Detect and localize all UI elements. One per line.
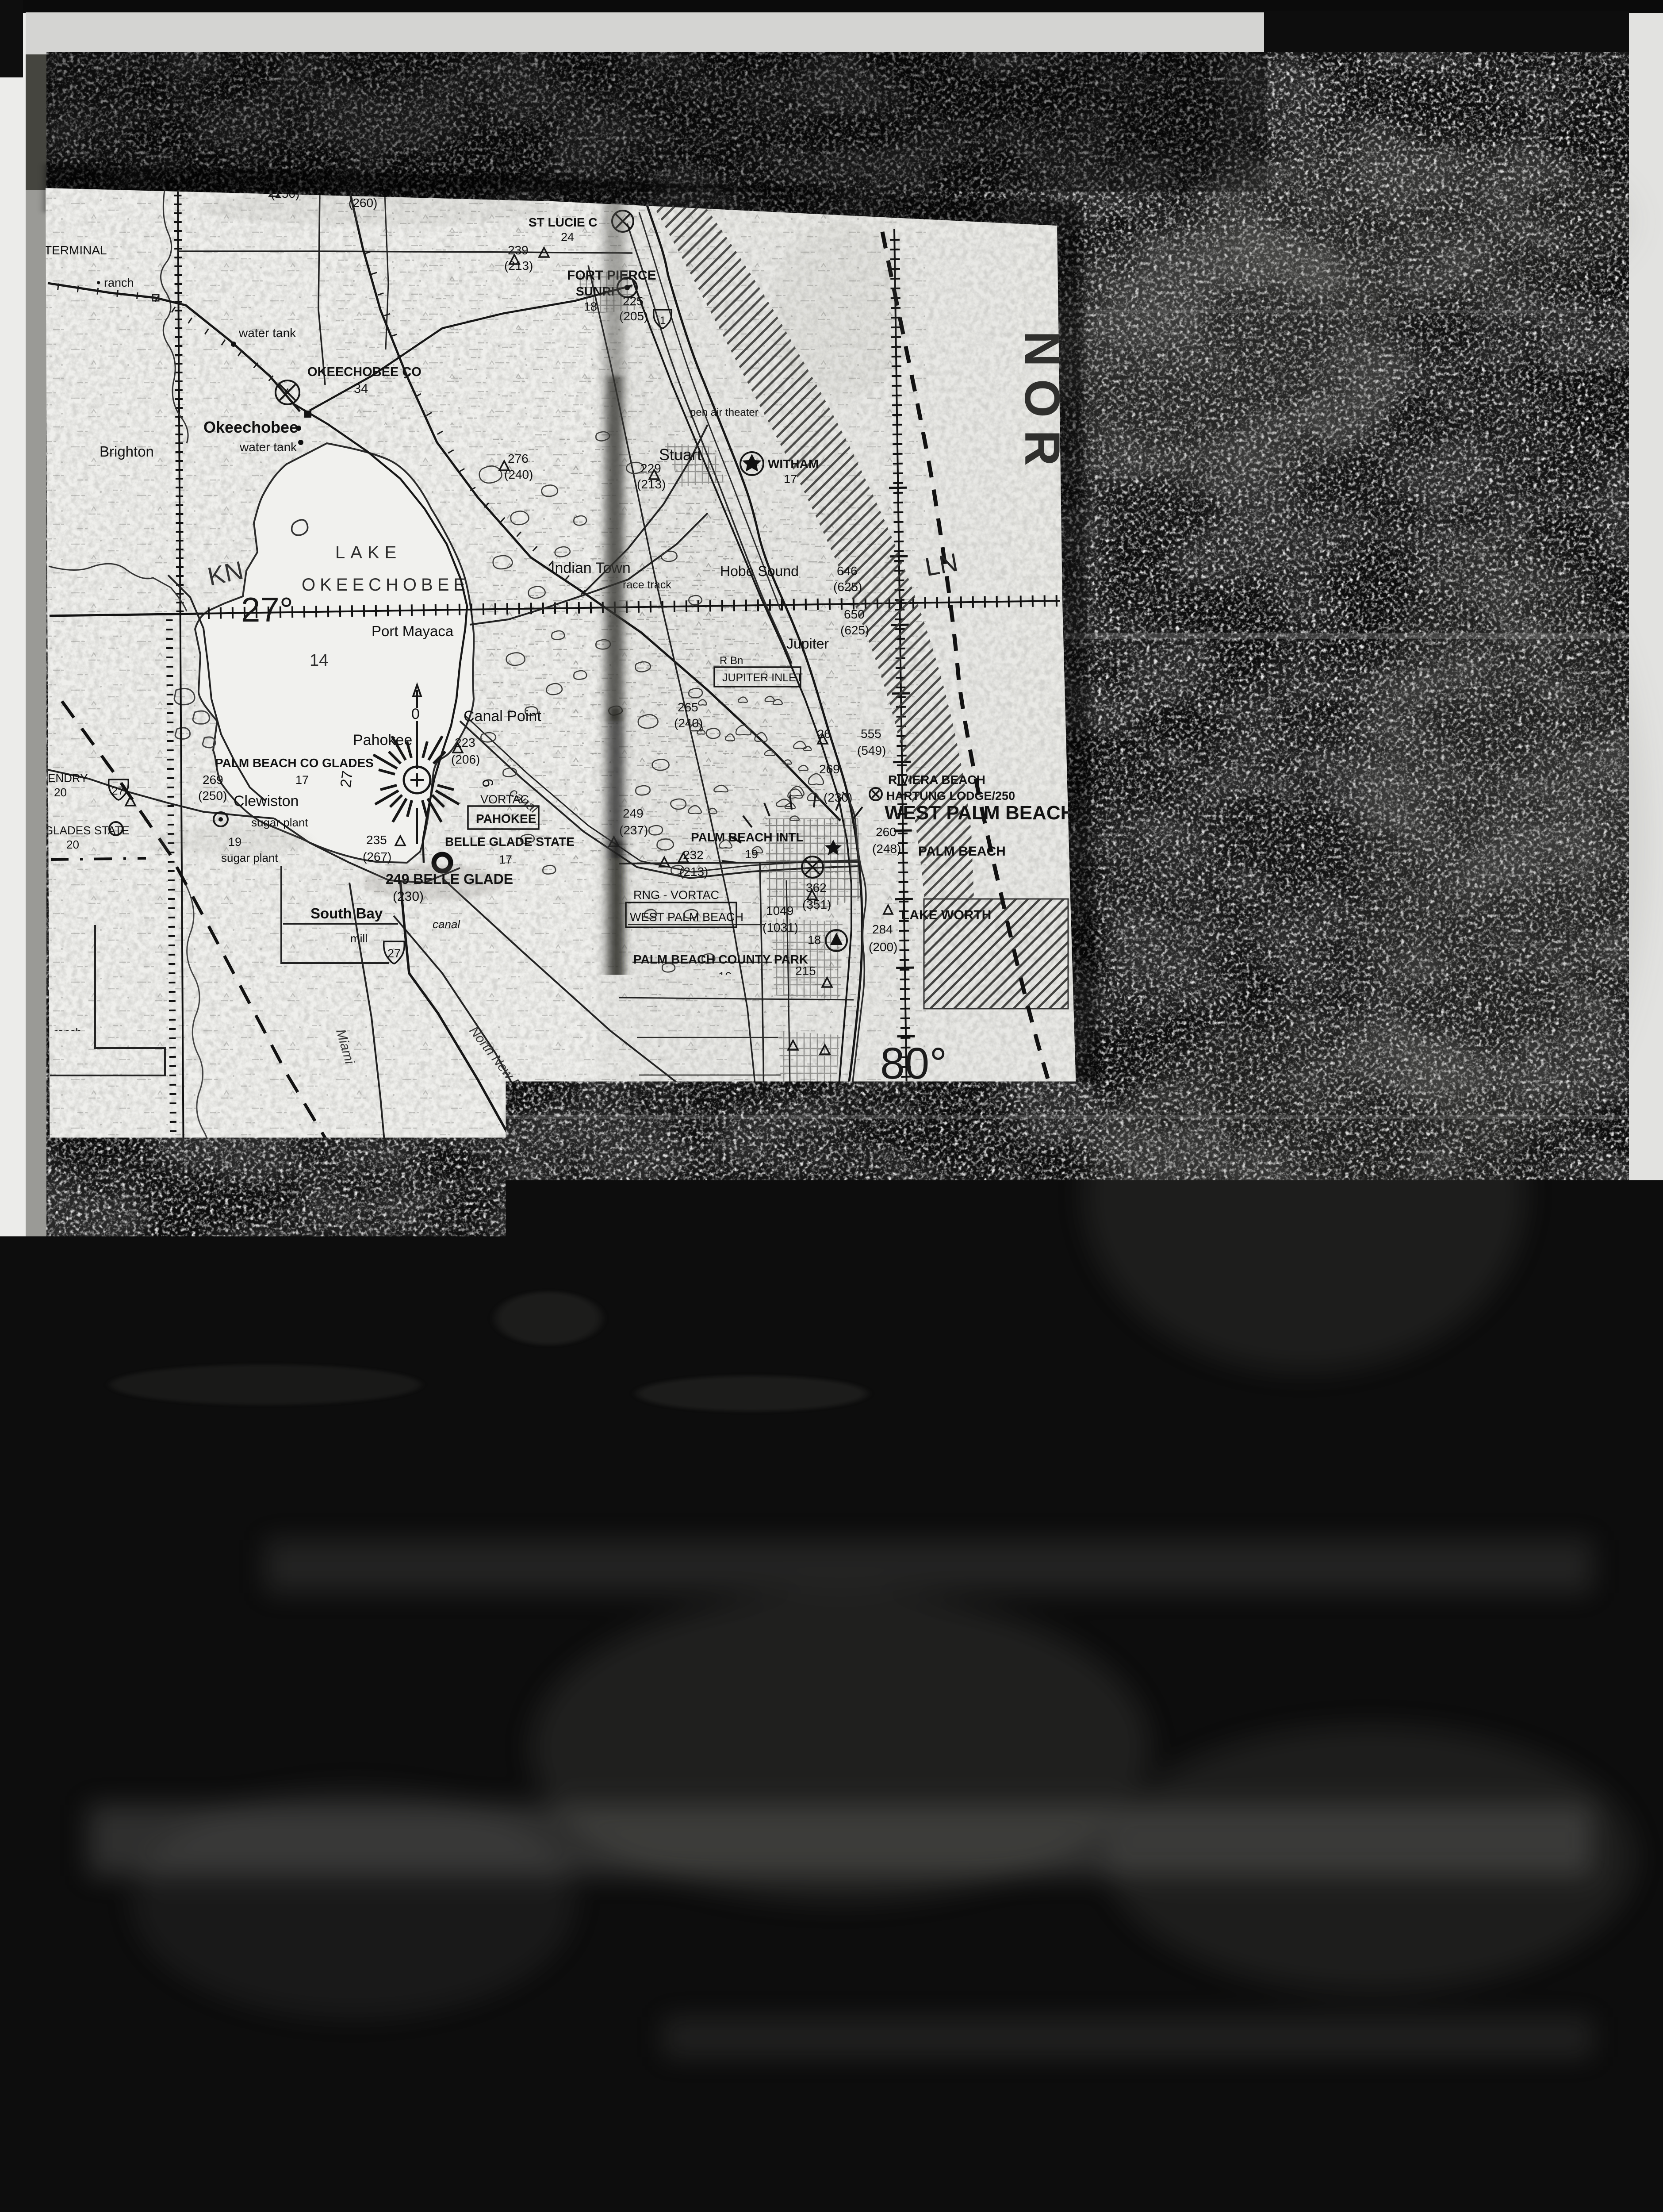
svg-text:FORT LAUDERDALE: FORT LAUDERDALE [847, 1298, 1030, 1319]
svg-text:mill: mill [350, 932, 368, 945]
svg-text:16: 16 [918, 1366, 931, 1379]
svg-text:(351): (351) [802, 898, 831, 911]
svg-text:Brighton: Brighton [100, 443, 154, 460]
svg-text:235: 235 [366, 833, 387, 847]
svg-text:17: 17 [784, 472, 797, 486]
svg-text:27: 27 [337, 770, 356, 789]
svg-text:(240): (240) [504, 468, 533, 481]
svg-text:(248): (248) [872, 842, 901, 856]
svg-text:997: 997 [780, 1378, 801, 1392]
svg-text:HOLLYWOOD: HOLLYWOOD [838, 1383, 948, 1402]
svg-text:PAHOKEE: PAHOKEE [476, 812, 536, 826]
svg-text:(230): (230) [824, 791, 852, 804]
svg-text:RNG - VORTAC: RNG - VORTAC [633, 888, 719, 902]
svg-text:284: 284 [872, 922, 893, 936]
svg-text:West Dixie Bend: West Dixie Bend [630, 1153, 741, 1170]
svg-text:OKEECHOBEE CO: OKEECHOBEE CO [307, 365, 421, 379]
svg-text:OKEECHOBEE: OKEECHOBEE [302, 575, 470, 595]
svg-text:HILLSBORO INLET: HILLSBORO INLET [928, 1194, 1030, 1207]
svg-text:27°: 27° [241, 590, 293, 629]
svg-text:canal: canal [433, 918, 460, 931]
svg-text:27: 27 [387, 947, 401, 960]
svg-text:02: 02 [504, 978, 582, 1039]
svg-text:PALM BEACH: PALM BEACH [918, 844, 1006, 859]
svg-text:19: 19 [228, 835, 241, 849]
svg-text:GLADES STATE: GLADES STATE [44, 824, 130, 837]
svg-text:(206): (206) [451, 753, 480, 766]
svg-text:27: 27 [111, 784, 124, 797]
svg-text:34: 34 [354, 382, 368, 396]
svg-text:(549): (549) [857, 744, 886, 757]
svg-text:(213): (213) [679, 865, 708, 879]
svg-text:Boynton Beach: Boynton Beach [717, 995, 824, 1013]
svg-text:BELLE GLADE STATE: BELLE GLADE STATE [445, 835, 575, 849]
svg-text:race track: race track [623, 579, 671, 591]
svg-text:sugar plant: sugar plant [221, 851, 278, 864]
svg-text:BOCA RATON: BOCA RATON [854, 1094, 943, 1109]
svg-text:WEST HOLLYWOOD: WEST HOLLYWOOD [571, 1380, 742, 1400]
svg-text:WITHAM: WITHAM [768, 457, 819, 471]
svg-text:362: 362 [806, 881, 827, 895]
svg-text:ST LUCIE C: ST LUCIE C [529, 215, 598, 229]
svg-text:1049: 1049 [766, 904, 793, 918]
svg-text:LN: LN [923, 548, 960, 582]
svg-text:26: 26 [817, 727, 831, 741]
svg-text:20: 20 [54, 786, 67, 799]
svg-text:Canal Point: Canal Point [464, 708, 541, 725]
svg-text:R Bn: R Bn [720, 655, 743, 667]
svg-text:WEST PALM BEACH: WEST PALM BEACH [630, 910, 743, 924]
svg-text:222: 222 [808, 1037, 828, 1050]
svg-text:race track: race track [742, 1233, 793, 1247]
svg-text:(300): (300) [755, 1050, 783, 1064]
svg-text:225: 225 [623, 294, 644, 308]
svg-text:(625): (625) [840, 623, 869, 637]
svg-text:229: 229 [640, 461, 661, 475]
svg-text:(200): (200) [709, 1195, 738, 1209]
svg-text:Clewiston: Clewiston [234, 793, 299, 810]
svg-text:20: 20 [66, 838, 79, 851]
svg-text:JUPITER INLET: JUPITER INLET [722, 672, 803, 684]
svg-text:249: 249 [623, 806, 644, 820]
svg-text:PALM BEACH CO GLADES: PALM BEACH CO GLADES [215, 756, 374, 770]
svg-text:(282): (282) [836, 1334, 865, 1348]
svg-text:249 BELLE GLADE: 249 BELLE GLADE [386, 871, 513, 887]
svg-text:Stack: Stack [787, 1306, 819, 1320]
svg-text:14: 14 [893, 1113, 906, 1126]
svg-text:(250): (250) [198, 789, 227, 803]
svg-text:VORTAC: VORTAC [480, 793, 529, 806]
svg-text:276: 276 [508, 452, 529, 465]
svg-text:(213): (213) [637, 477, 666, 491]
svg-text:(1031): (1031) [763, 921, 798, 934]
svg-text:(260): (260) [349, 196, 377, 210]
svg-text:265: 265 [678, 700, 698, 714]
svg-text:FT LAUDERDALE EXECUTIVE: FT LAUDERDALE EXECUTIVE [852, 1252, 1029, 1265]
svg-text:0: 0 [411, 706, 420, 722]
svg-text:Andytown: Andytown [513, 1288, 575, 1304]
svg-text:LAKE WORTH: LAKE WORTH [901, 908, 991, 922]
svg-text:(213): (213) [504, 259, 533, 273]
svg-text:650: 650 [844, 607, 865, 621]
svg-text:269: 269 [203, 773, 223, 787]
svg-text:(203): (203) [740, 1359, 768, 1373]
svg-text:water tank: water tank [238, 326, 296, 340]
svg-text:14: 14 [310, 651, 328, 670]
svg-text:269: 269 [819, 762, 840, 776]
svg-text:FLORIDA: FLORIDA [65, 1175, 341, 1220]
svg-text:21: 21 [854, 1210, 867, 1224]
svg-text:239: 239 [508, 243, 529, 257]
svg-text:ENDRY: ENDRY [48, 772, 88, 785]
svg-text:ranch: ranch [54, 1026, 82, 1039]
svg-text:213: 213 [743, 1343, 764, 1356]
svg-text:(267): (267) [363, 850, 391, 864]
svg-text:276: 276 [760, 1178, 781, 1192]
svg-text:232: 232 [683, 848, 704, 862]
svg-text:Pahokee: Pahokee [353, 732, 412, 749]
svg-text:pen air theater: pen air theater [690, 407, 759, 419]
svg-text:Jupiter: Jupiter [786, 636, 829, 652]
svg-text:(625): (625) [833, 580, 862, 594]
svg-text:WEST PALM BEACH: WEST PALM BEACH [885, 802, 1074, 824]
svg-text:278: 278 [839, 1316, 860, 1330]
svg-text:water tank: water tank [239, 440, 297, 454]
svg-text:POMPANO BEACH: POMPANO BEACH [852, 1233, 970, 1247]
svg-text:19: 19 [745, 848, 758, 861]
svg-text:324: 324 [758, 1033, 779, 1047]
svg-text:18: 18 [584, 300, 597, 313]
svg-text:(240): (240) [674, 716, 703, 730]
svg-text:212: 212 [713, 1178, 734, 1192]
svg-text:• ranch: • ranch [96, 276, 134, 289]
svg-text:Stuart: Stuart [659, 445, 701, 464]
svg-text:17: 17 [499, 853, 512, 866]
svg-text:HARTUNG LODGE/250: HARTUNG LODGE/250 [886, 789, 1015, 803]
svg-text:Deerfield Beach: Deerfield Beach [860, 1157, 973, 1175]
svg-text:18: 18 [808, 933, 821, 947]
svg-text:PALM BEACH COUNTY PARK: PALM BEACH COUNTY PARK [633, 952, 808, 966]
svg-text:1: 1 [660, 315, 666, 326]
svg-text:RIVIERA BEACH: RIVIERA BEACH [888, 773, 985, 787]
svg-text:(200): (200) [869, 940, 897, 954]
svg-text:PALM BEACH INTL: PALM BEACH INTL [691, 830, 804, 844]
svg-text:14: 14 [931, 1271, 944, 1284]
svg-text:BROOKLEY: BROOKLEY [808, 1276, 878, 1290]
svg-text:Hobe Sound: Hobe Sound [720, 563, 799, 579]
svg-text:LM: LM [958, 1366, 1002, 1402]
svg-text:555: 555 [861, 727, 881, 741]
svg-text:9: 9 [832, 1285, 839, 1298]
svg-text:223: 223 [455, 736, 475, 749]
svg-text:DELRAY BEACH: DELRAY BEACH [885, 1032, 989, 1046]
svg-text:TERMINAL: TERMINAL [44, 243, 107, 257]
svg-text:24: 24 [561, 230, 574, 244]
svg-text:(230): (230) [393, 889, 424, 904]
svg-text:16: 16 [718, 970, 732, 983]
svg-text:260: 260 [876, 825, 897, 839]
svg-text:South Bay: South Bay [310, 905, 383, 922]
svg-text:M R Bn: M R Bn [951, 1177, 983, 1188]
svg-text:215: 215 [795, 964, 816, 978]
svg-text:646: 646 [837, 564, 858, 578]
svg-text:LAKE: LAKE [335, 543, 402, 562]
svg-text:Port Mayaca: Port Mayaca [372, 623, 454, 639]
svg-text:BROWARD CO INTL: BROWARD CO INTL [838, 1354, 952, 1367]
svg-text:Okeechobee: Okeechobee [203, 418, 298, 436]
svg-text:R Bn: R Bn [575, 1250, 598, 1261]
svg-text:(985): (985) [777, 1395, 805, 1409]
svg-text:17: 17 [295, 773, 309, 787]
svg-text:(206): (206) [804, 1054, 833, 1068]
svg-text:(257): (257) [756, 1195, 785, 1209]
svg-text:(200): (200) [788, 982, 817, 995]
svg-text:KM: KM [209, 1340, 250, 1372]
svg-text:pumping st: pumping st [551, 1132, 607, 1145]
svg-text:sugar plant: sugar plant [251, 816, 308, 829]
